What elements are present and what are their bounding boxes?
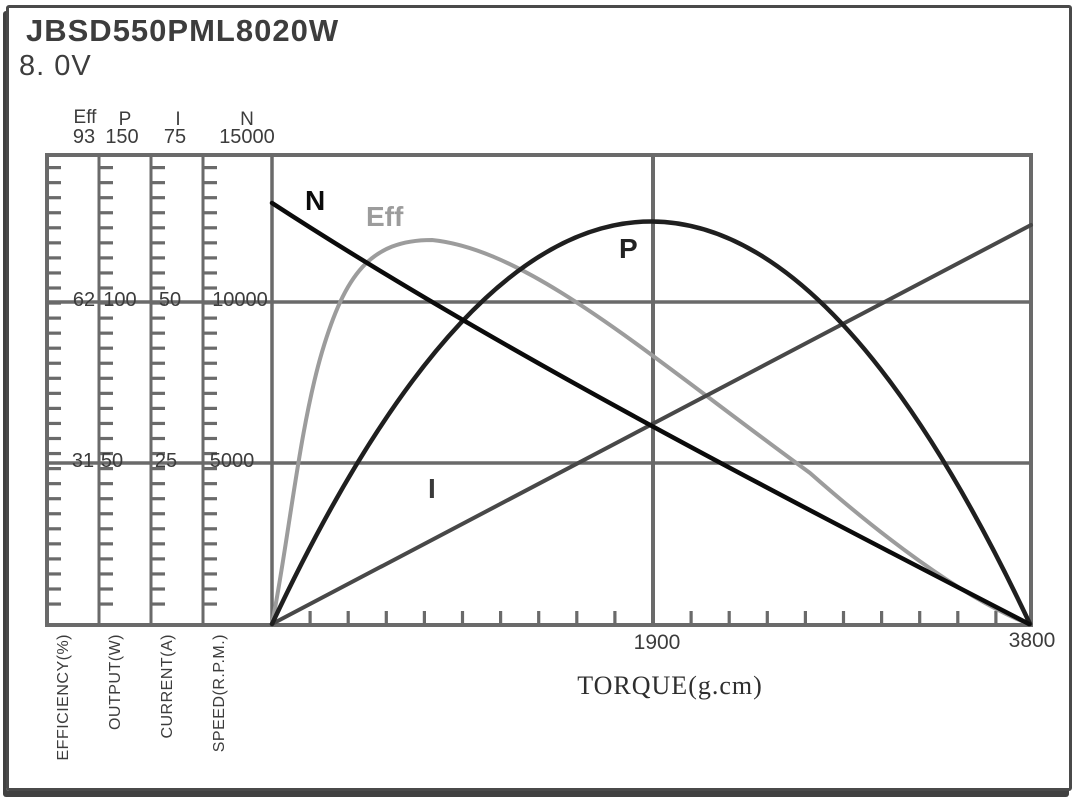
power-curve-label: P	[619, 233, 638, 265]
speed-tick-low: 5000	[210, 450, 255, 473]
current-tick-max: 75	[164, 126, 186, 149]
axis-minor-ticks	[48, 166, 998, 624]
output-tick-mid: 100	[103, 289, 136, 312]
current-axis-title: CURRENT(A)	[159, 634, 177, 739]
speed-curve-label: N	[305, 185, 325, 217]
datasheet-page: { "header": { "model": "JBSD550PML8020W"…	[0, 0, 1081, 804]
output-axis-title: OUTPUT(W)	[107, 634, 125, 730]
plot-border	[47, 155, 1031, 625]
torque-tick-1900: 1900	[634, 631, 681, 655]
torque-axis-title: TORQUE(g.cm)	[577, 671, 763, 701]
eff-tick-max: 93	[73, 126, 95, 149]
output-tick-max: 150	[105, 126, 138, 149]
efficiency-axis-title: EFFICIENCY(%)	[55, 634, 73, 761]
chart-grid	[47, 155, 1031, 625]
current-tick-mid: 50	[159, 289, 181, 312]
current-tick-low: 25	[155, 450, 177, 473]
eff-tick-low: 31	[72, 450, 94, 473]
current-curve-label: I	[428, 473, 436, 505]
efficiency-curve-label: Eff	[366, 201, 403, 233]
output-tick-low: 50	[101, 450, 123, 473]
torque-tick-3800: 3800	[1009, 629, 1056, 653]
speed-tick-mid: 10000	[212, 289, 268, 312]
eff-tick-mid: 62	[73, 289, 95, 312]
speed-axis-title: SPEED(R.P.M.)	[211, 634, 229, 752]
speed-tick-max: 15000	[219, 126, 275, 149]
